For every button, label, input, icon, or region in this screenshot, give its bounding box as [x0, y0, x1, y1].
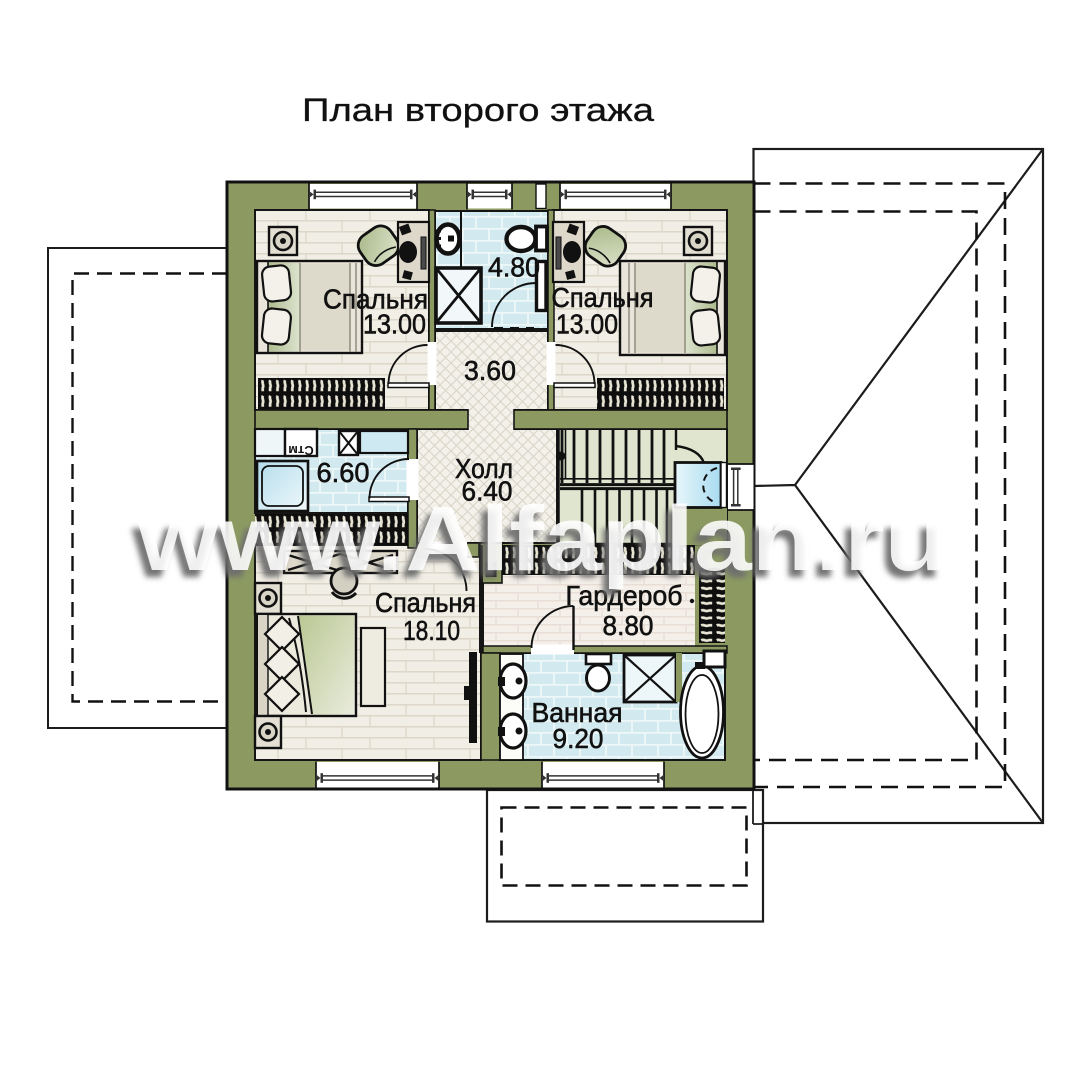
svg-text:План второго этажа: План второго этажа [302, 92, 654, 128]
svg-text:3.60: 3.60 [464, 355, 516, 386]
svg-text:4.80: 4.80 [488, 252, 540, 283]
svg-text:13.00: 13.00 [556, 309, 618, 340]
svg-text:9.20: 9.20 [553, 723, 604, 754]
svg-text:18.10: 18.10 [403, 615, 460, 646]
svg-text:www.Alfaplan.ru: www.Alfaplan.ru [137, 488, 948, 590]
svg-text:13.00: 13.00 [363, 309, 426, 340]
svg-text:8.80: 8.80 [603, 610, 654, 641]
svg-text:6.60: 6.60 [317, 457, 370, 488]
svg-text:Стм: Стм [288, 443, 313, 458]
